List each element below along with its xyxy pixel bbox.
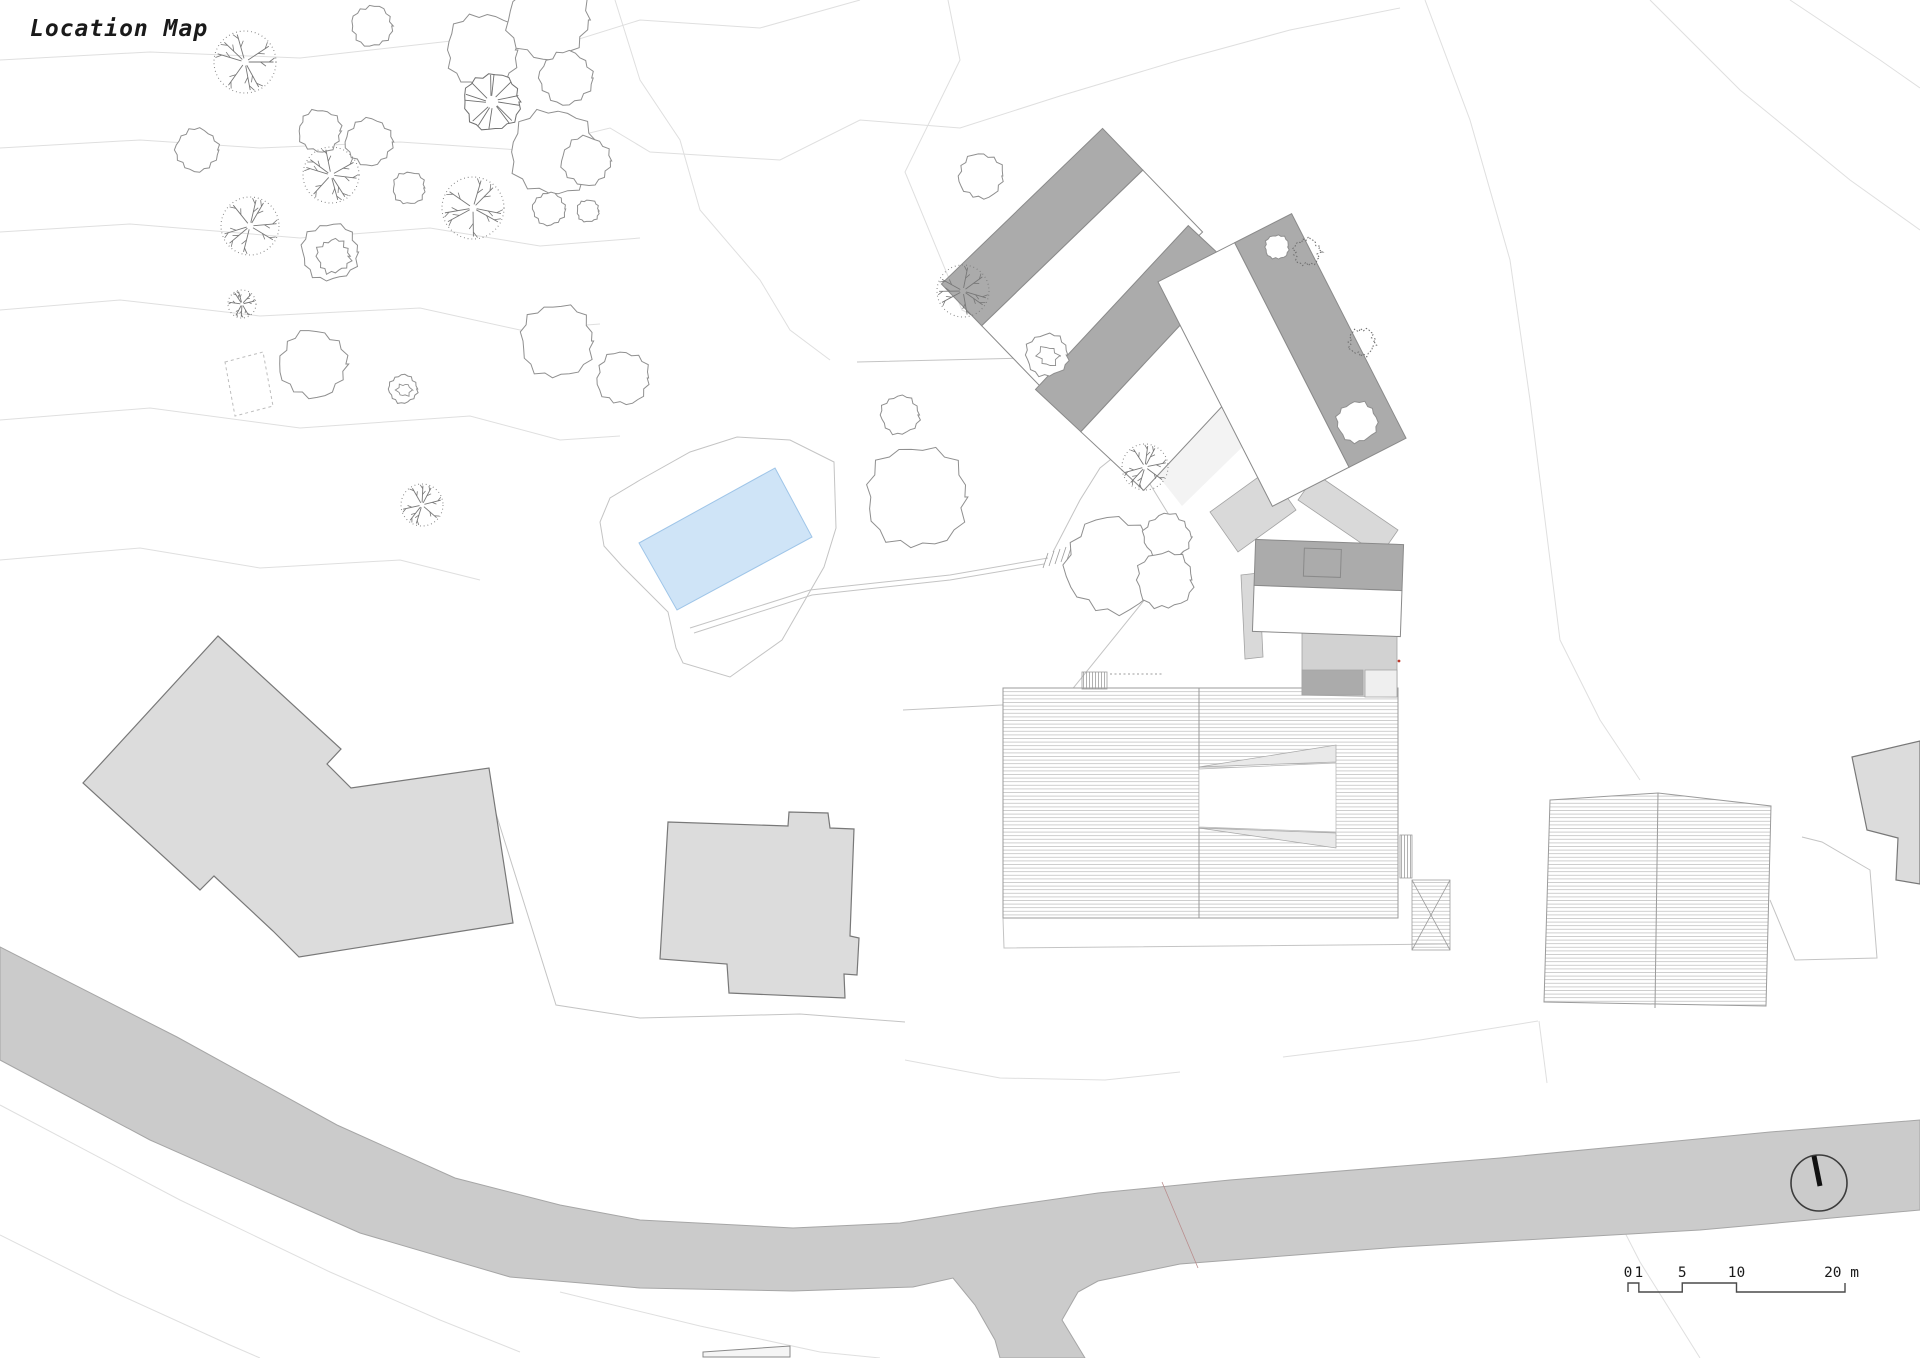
tree-blob [345, 117, 394, 165]
scale-bar: 0151020 m [1624, 1265, 1860, 1292]
building-footprint-west [83, 636, 513, 957]
location-map-sheet: 0151020 m Location Map [0, 0, 1920, 1358]
small-structure [703, 1346, 790, 1357]
exterior-steps [1061, 547, 1066, 562]
scale-bar-label: 0 [1624, 1265, 1633, 1281]
tree-branchy [401, 484, 443, 526]
tree-blob [577, 200, 599, 222]
exterior-steps [1055, 549, 1060, 564]
tree-blob [880, 395, 920, 435]
tree-sunburst [465, 74, 521, 130]
tree-blob [532, 192, 565, 226]
page-title: Location Map [30, 16, 208, 42]
scale-bar-label: 20 m [1824, 1265, 1859, 1281]
flat-roof-building-east [1544, 793, 1771, 1008]
tree-blob [280, 331, 349, 399]
swimming-pool [639, 468, 812, 610]
scale-bar-label: 10 [1728, 1265, 1745, 1281]
tree-branchy [221, 197, 279, 255]
tree-blob [299, 110, 342, 153]
exterior-steps [1049, 551, 1054, 566]
scale-bar-steps [1628, 1283, 1845, 1292]
flat-roof-building-main [1003, 672, 1450, 950]
tree-squiggle [388, 374, 418, 403]
annex-roof [1302, 670, 1363, 695]
tree-blob [520, 305, 593, 378]
tree-blob [506, 0, 591, 61]
tree-blob2 [301, 224, 359, 281]
tree-branchy [214, 31, 276, 93]
tree-blob [352, 5, 393, 46]
tree-blob [393, 172, 425, 204]
scale-bar-label: 5 [1678, 1265, 1687, 1281]
gabled-house-d [1252, 539, 1403, 636]
road [0, 947, 1920, 1358]
tree-blob [174, 128, 219, 173]
tree-branchy [442, 177, 504, 239]
exterior-steps [1043, 553, 1048, 568]
annex-roof [1365, 670, 1397, 697]
building-footprint-center [660, 812, 859, 998]
tree-blob [867, 447, 968, 547]
red-marker-dot [1398, 660, 1401, 663]
tree-blob [1265, 235, 1289, 259]
tree-blob [597, 352, 649, 405]
garden-bed-outline [225, 352, 273, 416]
site-plan-canvas: 0151020 m [0, 0, 1920, 1358]
scale-bar-label: 1 [1634, 1265, 1643, 1281]
building-footprint-east-edge [1852, 741, 1920, 884]
tree-blob [958, 154, 1003, 199]
